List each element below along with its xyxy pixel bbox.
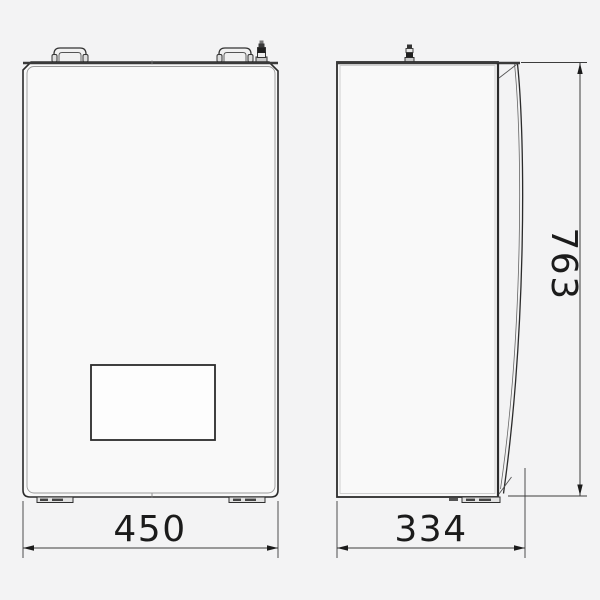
- foot-detail: [245, 499, 256, 501]
- arrowhead-top: [577, 63, 582, 74]
- handle-right: [217, 48, 253, 62]
- front-panel-curve-outer: [504, 64, 523, 494]
- arrowhead-bottom: [577, 485, 582, 496]
- display-window: [91, 365, 215, 440]
- arrowhead-left: [23, 545, 34, 550]
- handle-foot: [217, 55, 222, 63]
- valve-fitting-side: [405, 45, 414, 63]
- handle-foot: [83, 55, 88, 63]
- technical-drawing: 450 334 763: [0, 0, 600, 600]
- foot-detail: [479, 499, 491, 501]
- side-view: [337, 45, 523, 503]
- dimension-label-height: 763: [543, 227, 584, 300]
- front-foot-right: [229, 497, 265, 503]
- side-foot: [449, 497, 500, 503]
- dimension-width-450: 450: [23, 501, 278, 558]
- side-cabinet-body: [337, 62, 498, 497]
- panel-joint-top: [499, 65, 517, 79]
- handle-left: [52, 48, 88, 62]
- foot-detail: [449, 498, 458, 502]
- arrowhead-right: [514, 545, 525, 550]
- front-view: [23, 41, 278, 503]
- handle-foot: [248, 55, 253, 63]
- valve-band: [258, 48, 266, 53]
- arrowhead-left: [337, 545, 348, 550]
- valve-ring: [406, 49, 413, 53]
- valve-band: [406, 53, 413, 58]
- front-panel-curve-inner: [501, 64, 520, 489]
- arrowhead-right: [267, 545, 278, 550]
- dimension-label-depth: 334: [394, 509, 467, 550]
- technical-drawing-page: 450 334 763: [0, 0, 600, 600]
- foot-detail: [466, 499, 475, 501]
- valve-cap: [259, 44, 265, 48]
- foot-detail: [40, 499, 48, 501]
- handle-foot: [52, 55, 57, 63]
- dimension-height-763: 763: [508, 63, 587, 497]
- valve-nub: [260, 41, 264, 44]
- valve-fitting-front: [256, 41, 267, 63]
- foot-detail: [233, 499, 241, 501]
- valve-cap: [407, 45, 412, 49]
- front-foot-left: [37, 497, 73, 503]
- foot-detail: [52, 499, 63, 501]
- valve-ring: [258, 53, 266, 58]
- dimension-label-width: 450: [113, 509, 186, 550]
